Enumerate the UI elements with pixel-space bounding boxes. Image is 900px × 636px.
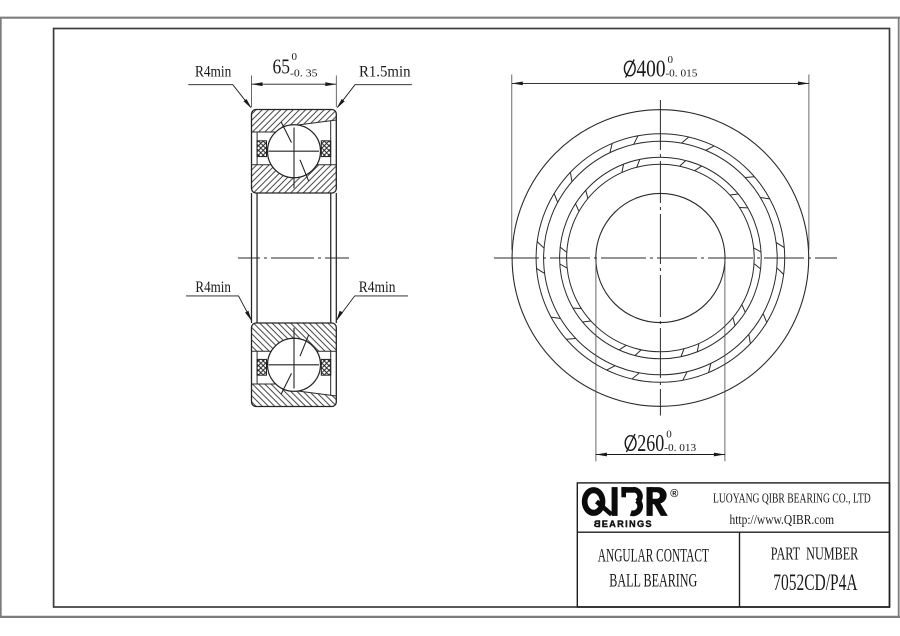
svg-text:EARINGS: EARINGS [602,519,653,530]
svg-text:ANGULAR CONTACT: ANGULAR CONTACT [598,546,709,567]
svg-text:BALL BEARING: BALL BEARING [609,571,697,592]
svg-text:0: 0 [668,54,674,66]
svg-text:PART NUMBER: PART NUMBER [771,543,859,563]
svg-text:-0. 013: -0. 013 [664,442,697,454]
svg-text:7052CD/P4A: 7052CD/P4A [773,570,857,595]
svg-text:400: 400 [637,56,666,82]
svg-text:65: 65 [273,55,291,79]
svg-text:LUOYANG QIBR BEARING CO., LTD: LUOYANG QIBR BEARING CO., LTD [713,490,871,505]
svg-text:R4min: R4min [195,63,232,80]
svg-text:®: ® [670,488,678,500]
svg-text:0: 0 [666,428,672,440]
svg-text:0: 0 [292,51,298,63]
svg-text:-0. 015: -0. 015 [665,67,698,79]
svg-text:-0. 35: -0. 35 [290,67,318,79]
svg-text:R4min: R4min [359,279,396,296]
svg-text:http://www.QIBR.com: http://www.QIBR.com [730,512,835,527]
svg-text:R4min: R4min [195,279,231,296]
svg-text:260: 260 [637,431,664,457]
svg-text:R1.5min: R1.5min [359,63,411,80]
svg-text:B: B [594,519,601,530]
